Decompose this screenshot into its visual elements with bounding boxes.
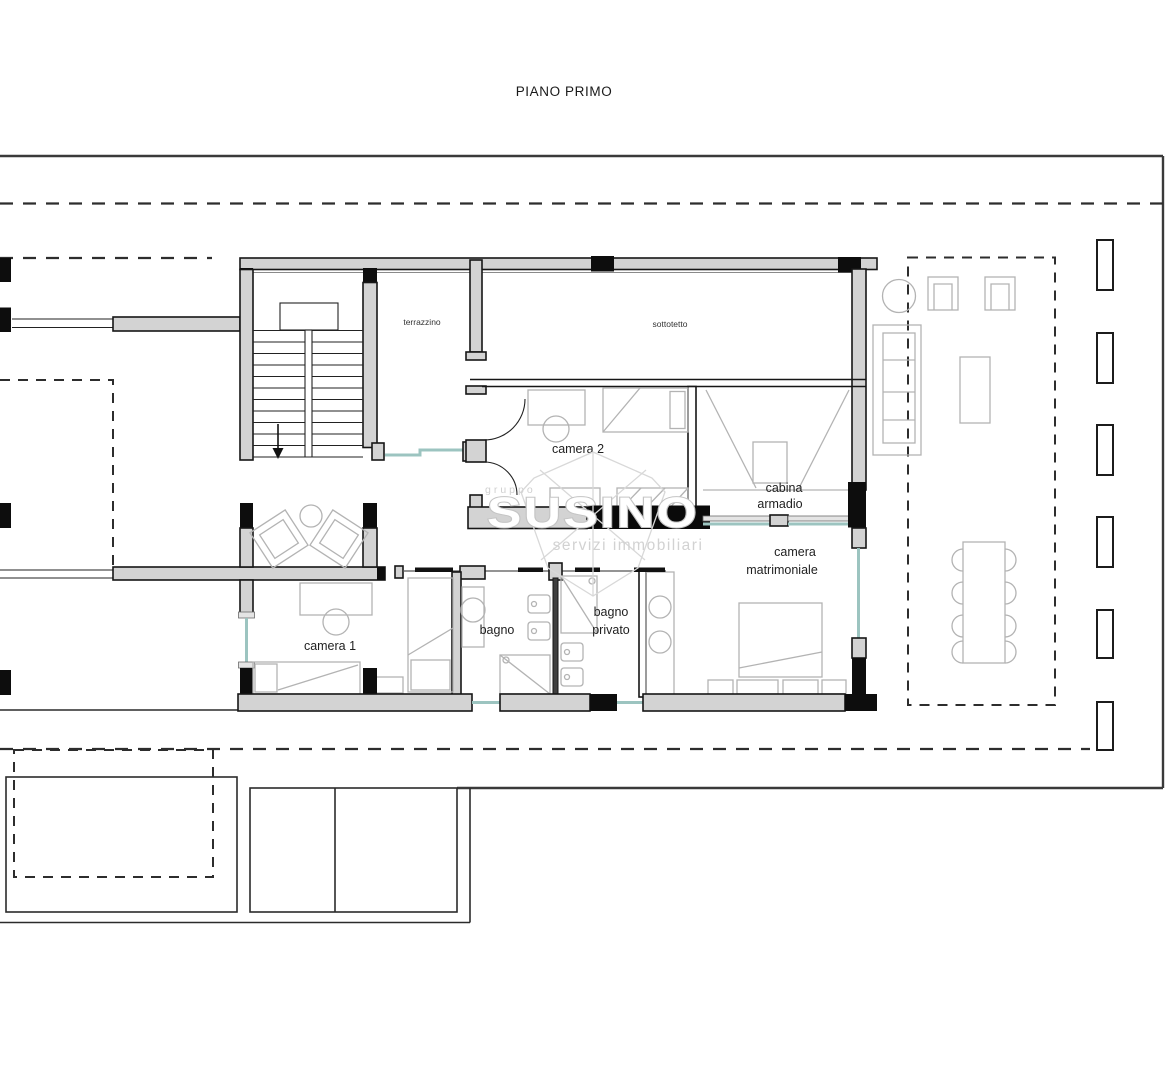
room-bagno: bagno [461, 587, 550, 694]
single-bed [253, 662, 360, 694]
room-camera-1: camera 1 [239, 503, 462, 695]
stair-direction-arrow [273, 424, 284, 459]
west-wing [0, 258, 385, 695]
lower-level-outlines [6, 750, 457, 912]
sliding-door [415, 568, 453, 573]
stair-landing [280, 303, 338, 330]
room-label-cabina-armadio-1: cabina [766, 481, 803, 495]
shower [500, 655, 550, 694]
watermark-tagline-text: servizi immobiliari [553, 537, 704, 554]
stair-stringer [305, 330, 312, 457]
desk-chair [543, 416, 569, 442]
veranda-terrace [873, 240, 1113, 750]
washbasin [461, 598, 485, 622]
floor-plan-page: PIANO PRIMO [0, 0, 1170, 1075]
door-jamb [466, 352, 486, 360]
garage-outline [250, 788, 457, 912]
pergola-beams [1097, 240, 1113, 750]
desk-chair [323, 609, 349, 635]
room-label-camera-matrimoniale-1: camera [774, 545, 816, 559]
washbasin-unit [462, 587, 484, 647]
west-window [239, 580, 255, 695]
facade-pillar [0, 258, 11, 282]
round-table [883, 280, 916, 313]
window-band-lower [0, 570, 113, 578]
sliding-door [575, 568, 600, 573]
facade-pillar [0, 503, 11, 528]
tall-wardrobe [646, 572, 674, 697]
wardrobe-island [753, 442, 787, 483]
window-band-upper [12, 319, 115, 328]
single-bed [408, 578, 453, 692]
desk [528, 390, 585, 425]
south-wall [238, 694, 877, 711]
sun-lounger [873, 325, 921, 455]
room-label-camera-1: camera 1 [304, 639, 356, 653]
room-label-bagno-privato-1: bagno [594, 605, 629, 619]
single-bed [603, 388, 688, 432]
room-label-cabina-armadio-2: armadio [757, 497, 802, 511]
stair-treads [253, 331, 363, 458]
page-title: PIANO PRIMO [516, 84, 613, 99]
door-mullion [466, 440, 486, 462]
roof-overhang-dashes [0, 204, 1163, 750]
room-bagno-privato: bagno privato [553, 576, 630, 697]
sliding-glass-doors [703, 515, 852, 526]
room-label-bagno: bagno [480, 623, 515, 637]
room-sottotetto: sottotetto [466, 260, 866, 490]
double-bed [708, 603, 846, 694]
partition-wall [639, 570, 646, 697]
wall-post [549, 563, 562, 580]
armchair [250, 510, 308, 568]
facade-pillar [0, 308, 11, 333]
watermark: gruppo SUSINO servizi immobiliari [485, 452, 703, 596]
nightstand [375, 677, 403, 693]
room-label-camera-matrimoniale-2: matrimoniale [746, 563, 818, 577]
sliding-door [518, 568, 543, 573]
door-swing-arc [484, 399, 525, 440]
dining-table [952, 542, 1016, 663]
sitting-nook [240, 503, 377, 568]
room-cabina-armadio: cabina armadio [703, 390, 866, 528]
terrace-dashed-outline [908, 258, 1055, 706]
facade-pillar [0, 670, 11, 695]
room-label-sottotetto: sottotetto [653, 319, 688, 329]
floor-plan-drawing: PIANO PRIMO [0, 0, 1170, 1075]
desk [300, 583, 372, 615]
north-wall [240, 256, 877, 283]
round-side-table [300, 505, 322, 527]
glass-partition [385, 450, 463, 455]
terrace-chair [985, 277, 1015, 310]
pool-inner-dashed [14, 750, 213, 877]
staircase [240, 270, 484, 462]
armchair [310, 510, 368, 568]
sliding-door [634, 568, 665, 573]
pool-outline [6, 777, 237, 912]
room-label-bagno-privato-2: privato [592, 623, 630, 637]
terrace-chair [928, 277, 958, 310]
east-window [852, 528, 866, 695]
low-table [960, 357, 990, 423]
partition-wall [553, 578, 558, 697]
room-terrazzino: terrazzino [403, 317, 441, 327]
room-label-terrazzino: terrazzino [403, 317, 441, 327]
watermark-brand-text: SUSINO [487, 489, 699, 537]
